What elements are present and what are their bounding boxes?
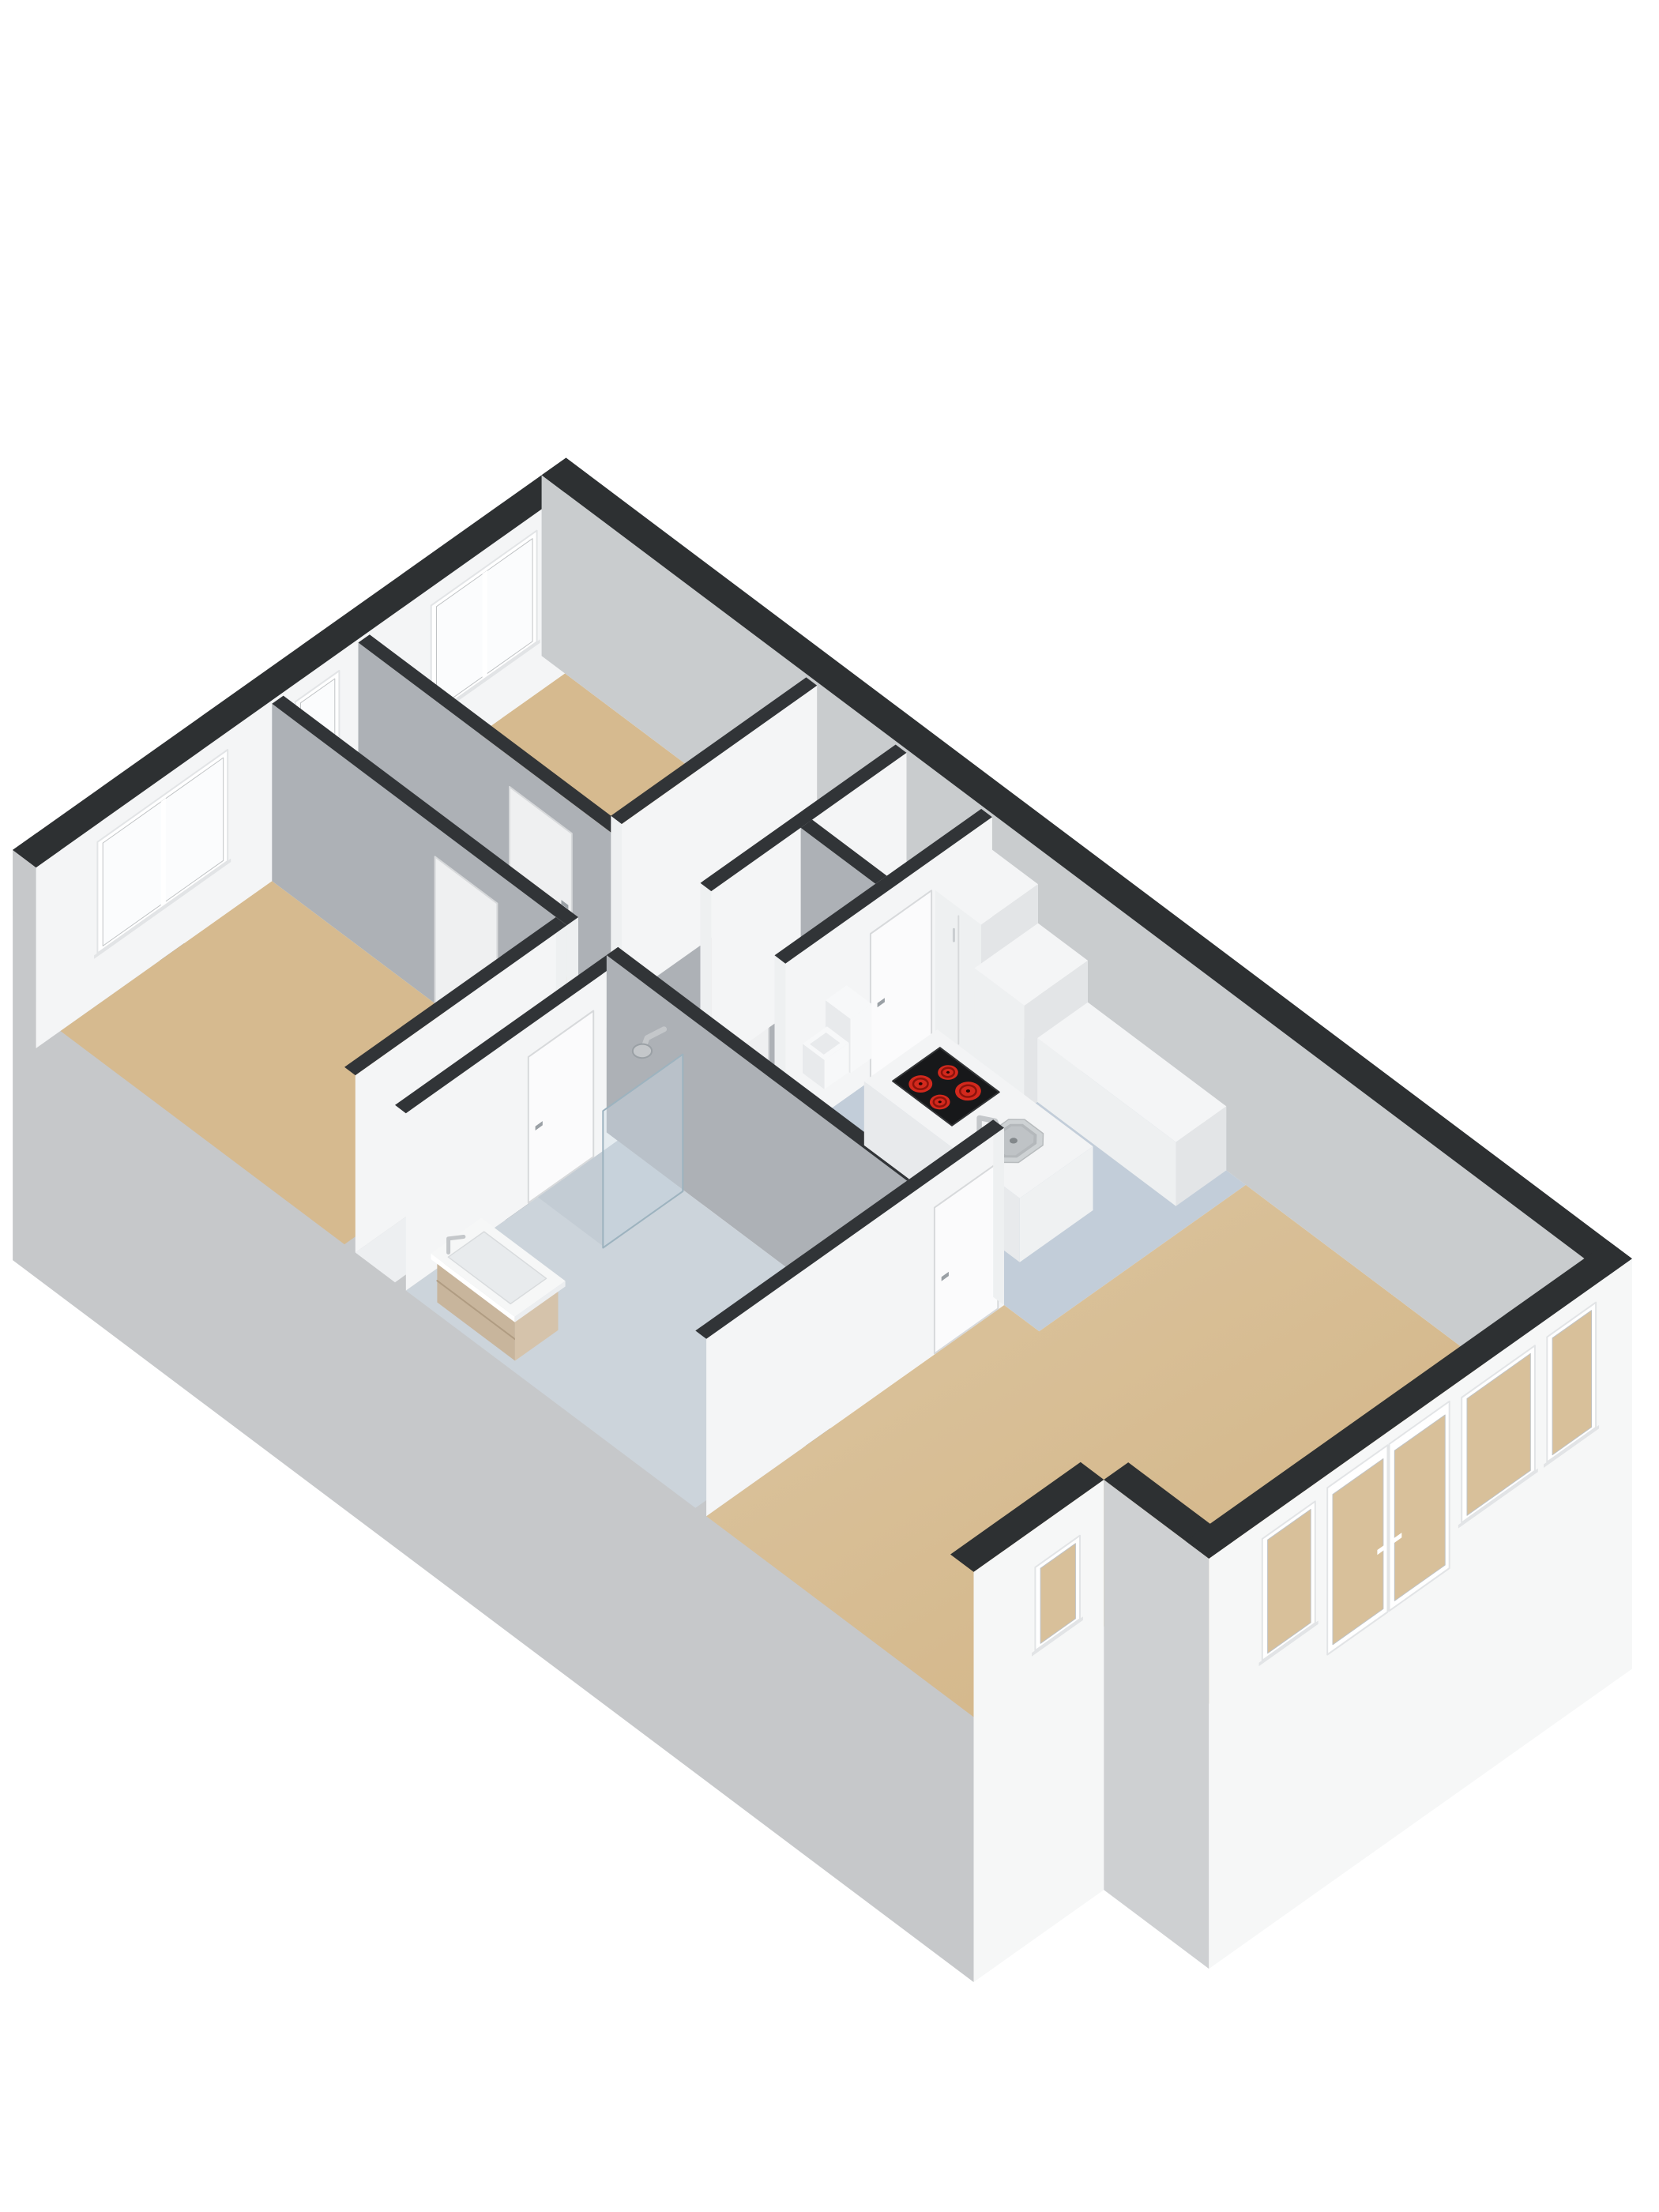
apartment-scene (13, 458, 1632, 1983)
floor-plan-3d-render (0, 0, 1659, 2212)
bedroom-1-window-mullion (161, 798, 166, 905)
notch-side-wall-outer-face (1104, 1480, 1209, 1969)
floor-plan-viewer (0, 0, 1659, 2212)
bedroom-2-window-mullion (483, 570, 487, 678)
living-room-nw-wall-end (993, 1119, 1004, 1305)
